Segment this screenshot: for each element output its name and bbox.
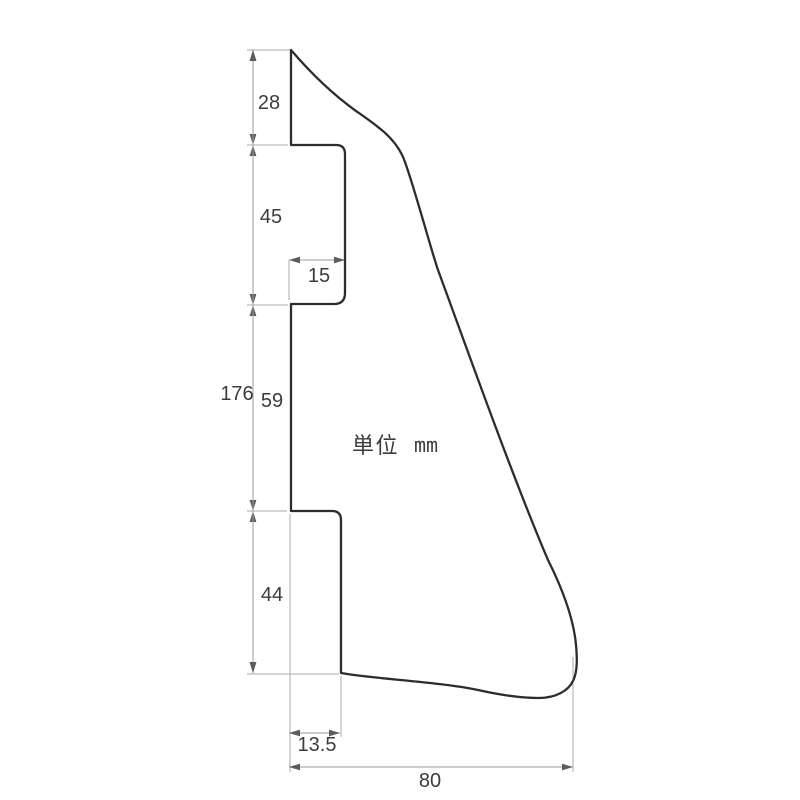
dimension-label-176: 176: [220, 383, 253, 405]
unit-note: 単位mm: [352, 433, 438, 458]
dimension-label-44: 44: [261, 584, 283, 606]
dimension-13.5: 13.5: [289, 730, 340, 756]
dimension-label-59: 59: [261, 390, 283, 412]
unit-note-unit: mm: [414, 433, 438, 457]
dimension-label-80: 80: [419, 770, 441, 792]
unit-note-prefix: 単位: [352, 433, 399, 458]
dimension-label-13.5: 13.5: [298, 734, 337, 756]
dimension-label-15: 15: [308, 265, 330, 287]
profile-dimension-drawing: 284559441761513.580単位mm: [0, 0, 800, 800]
technical-drawing-canvas: 284559441761513.580単位mm: [0, 0, 800, 800]
dimension-label-45: 45: [260, 206, 282, 228]
dimension-label-28: 28: [258, 92, 280, 114]
